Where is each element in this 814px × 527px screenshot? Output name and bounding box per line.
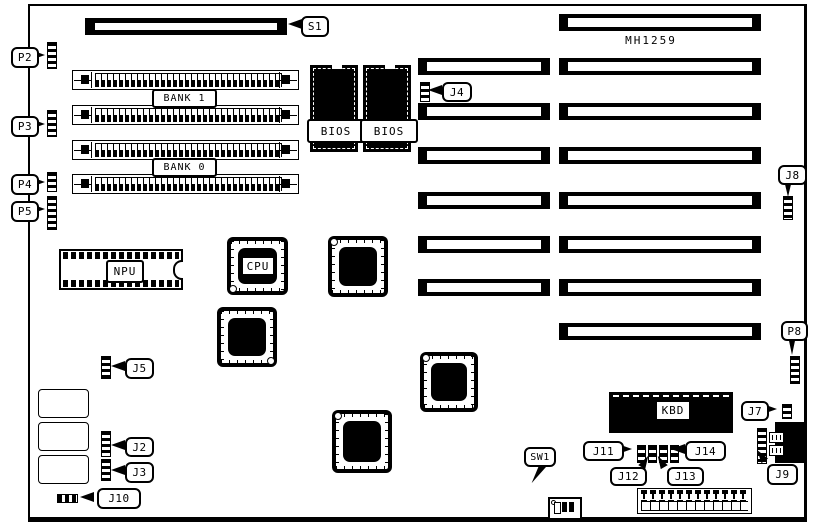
callout-tail [111,465,125,475]
plcc-die [228,318,266,356]
j5-connector [101,356,111,379]
p3-connector [47,110,57,137]
slot-opening [427,240,541,249]
slot-opening [568,283,752,292]
p8-connector [790,356,800,384]
pin1-dot [334,412,342,420]
slot-opening [568,327,752,336]
dip-notch [173,260,183,280]
power-connector [637,488,752,514]
plcc-die [339,247,377,286]
callout-tail [80,492,94,502]
callout-j14: J14 [685,441,726,461]
bank0-label: BANK 0 [152,158,217,177]
j7-connector [782,404,792,419]
pin1-dot [229,285,237,293]
p4-connector [47,172,57,192]
plcc-chip-b [217,307,277,367]
expansion-slot-short-3 [418,147,550,164]
simm-latch [74,176,92,192]
capacitor-2 [38,422,89,451]
expansion-slot-short-1 [418,58,550,75]
pin1-dot [422,354,430,362]
callout-p4: P4 [11,174,39,195]
expansion-slot-long-6 [559,236,761,253]
callout-p5: P5 [11,201,39,222]
capacitor-3 [38,455,89,484]
simm-socket-2 [72,105,299,125]
npu-label: NPU [106,260,144,283]
power-connector-terminals [641,501,748,511]
expansion-slot-long-7 [559,279,761,296]
callout-j3: J3 [125,462,154,483]
expansion-slot-short-4 [418,192,550,209]
simm-contacts [95,73,282,87]
slot-opening [568,18,752,27]
simm-socket-1 [72,70,299,90]
switch-pos-3 [569,502,574,512]
simm-contacts [95,177,282,191]
callout-j10: J10 [97,488,141,509]
callout-j11: J11 [583,441,624,461]
callout-j13: J13 [667,467,704,486]
simm-latch [74,142,92,158]
callout-s1: S1 [301,16,329,37]
p2-connector [47,42,57,69]
pin1-dot [267,357,275,365]
callout-j4: J4 [442,82,472,102]
callout-sw1: SW1 [524,447,556,467]
callout-j12: J12 [610,467,647,486]
simm-latch [279,142,297,158]
j8-connector [783,196,793,220]
capacitor-1 [38,389,89,418]
slot-opening [427,196,541,205]
plcc-chip-c [420,352,478,412]
plcc-chip-a [328,236,388,297]
chip-notch [385,65,395,69]
slot-s1-opening [95,23,277,30]
simm-latch [279,107,297,123]
slot-opening [427,107,541,116]
slot-opening [568,151,752,160]
callout-tail [671,444,685,454]
pin1-dot [330,238,338,246]
slot-opening [568,196,752,205]
expansion-slot-long-2 [559,58,761,75]
bios-left-label: BIOS [307,119,365,143]
callout-tail [111,361,125,371]
callout-tail [288,19,302,29]
callout-p2: P2 [11,47,39,68]
slot-s1 [85,18,287,35]
plcc-die [431,363,467,401]
expansion-slot-short-2 [418,103,550,120]
callout-j7: J7 [741,401,769,421]
callout-j5: J5 [125,358,154,379]
slot-opening [568,62,752,71]
callout-j8: J8 [778,165,807,185]
simm-latch [74,107,92,123]
j10-connector [57,494,78,503]
expansion-slot-short-5 [418,236,550,253]
simm-socket-3 [72,140,299,160]
slot-opening [427,283,541,292]
expansion-slot-long-4 [559,147,761,164]
simm-socket-4 [72,174,299,194]
bios-right-label: BIOS [360,119,418,143]
callout-p3: P3 [11,116,39,137]
simm-latch [279,72,297,88]
plcc-chip-d [332,410,392,473]
callout-tail [111,440,125,450]
expansion-slot-long-8 [559,323,761,340]
motherboard-diagram: MH1259 BANK 1 BANK 0 BIOS BIOS NPU CPU K… [0,0,814,527]
expansion-slot-long-3 [559,103,761,120]
slot-opening [568,107,752,116]
slot-opening [568,240,752,249]
simm-contacts [95,143,282,157]
dip-switch-sw1 [548,497,582,520]
expansion-slot-long-1 [559,14,761,31]
callout-j9: J9 [767,464,798,485]
expansion-slot-short-6 [418,279,550,296]
slot-opening [427,62,541,71]
connector-tab-2 [769,445,784,456]
cpu-label: CPU [243,258,273,274]
j3-connector [101,459,111,481]
switch-pos-1 [554,502,561,514]
p5-connector [47,196,57,230]
connector-tab-1 [769,432,784,443]
callout-tail [428,85,442,95]
board-model-text: MH1259 [591,34,711,47]
bank1-label: BANK 1 [152,89,217,108]
simm-contacts [95,108,282,122]
j2-connector [101,431,111,457]
callout-p8: P8 [781,321,808,341]
slot-opening [427,151,541,160]
simm-latch [279,176,297,192]
chip-notch [332,65,342,69]
plcc-die [343,421,381,462]
expansion-slot-long-5 [559,192,761,209]
switch-pos-2 [562,502,567,512]
callout-j2: J2 [125,437,154,457]
simm-latch [74,72,92,88]
kbd-label: KBD [657,402,689,419]
